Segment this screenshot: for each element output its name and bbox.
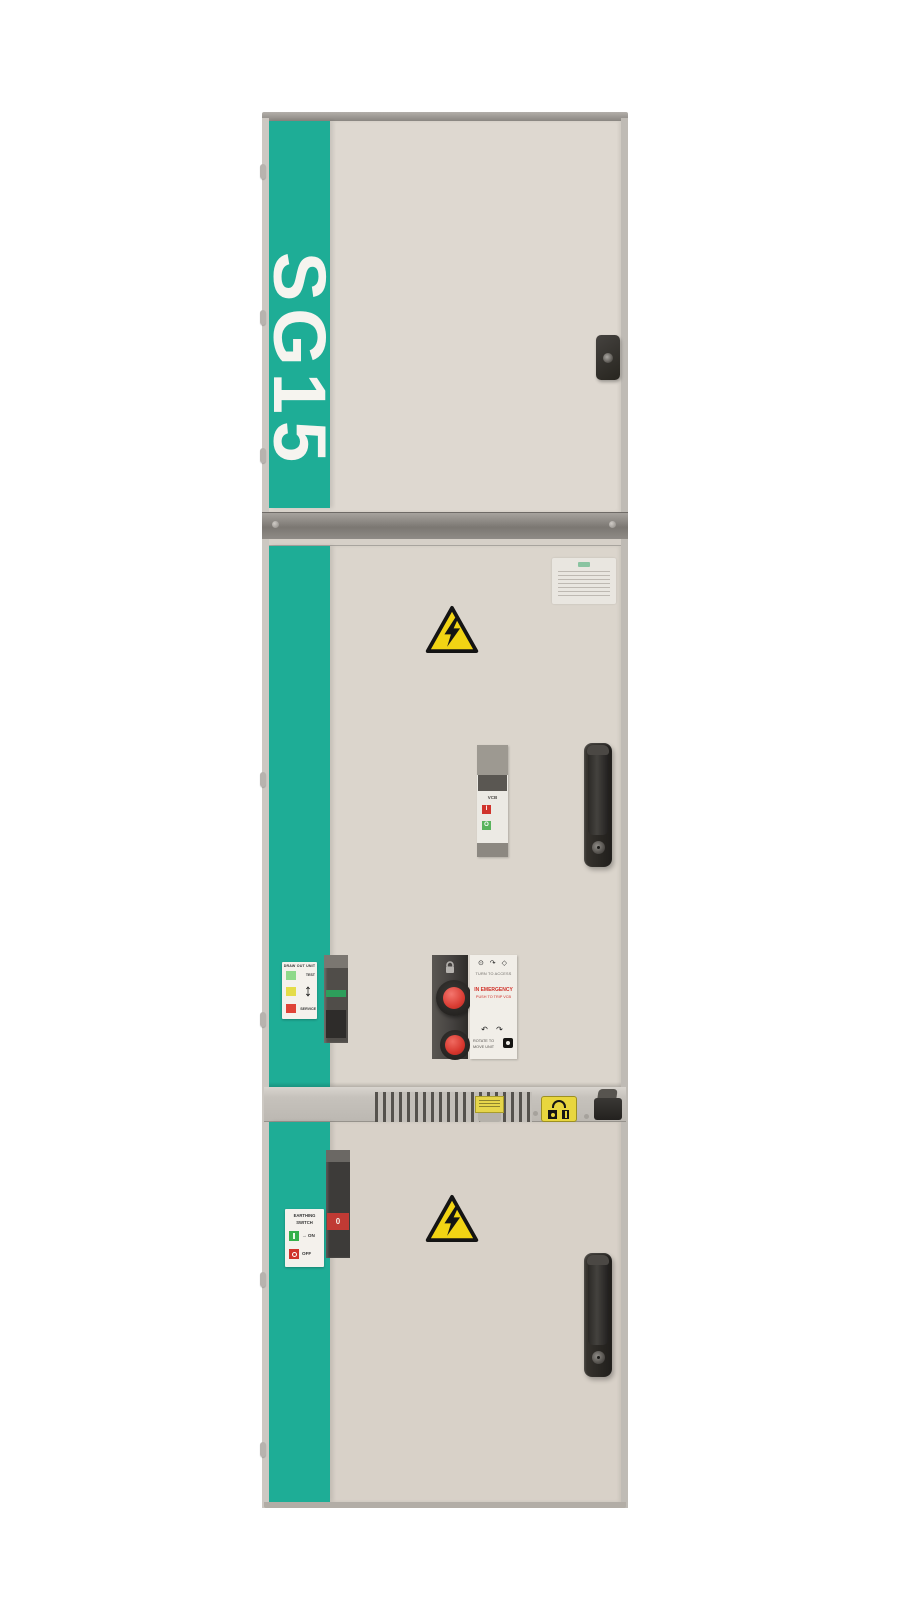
rating-plate (552, 558, 616, 604)
vcb-open-indicator: O (482, 821, 491, 830)
slot-top-segment (326, 1150, 350, 1162)
vcb-window-frame (478, 775, 507, 791)
top-door-lock[interactable] (596, 335, 620, 380)
earthing-on-icon (289, 1231, 299, 1241)
vcb-label: VCB (477, 795, 508, 800)
slot-lower-segment (326, 1010, 346, 1038)
rotate-text-line1: ROTATE TO (473, 1039, 494, 1043)
screw-icon (584, 1114, 589, 1119)
rail-warning-label (475, 1096, 504, 1113)
service-position-red-swatch (286, 1004, 296, 1013)
emergency-trip-button[interactable] (443, 987, 465, 1009)
rotate-to-lock-label (541, 1096, 577, 1122)
hinge (260, 1012, 266, 1027)
earthing-on-text: → ON (302, 1233, 315, 1238)
off-ring (292, 1252, 297, 1257)
rail-latch-tab[interactable] (478, 1113, 501, 1122)
ventilation-grille (375, 1092, 532, 1122)
racking-socket-icon (503, 1038, 513, 1048)
unlock-position-icon (562, 1110, 569, 1119)
slot-position-marker (326, 990, 346, 997)
high-voltage-hazard-icon (425, 1190, 479, 1247)
earthing-title-line2: SWITCH (285, 1220, 324, 1225)
lock-position-icon (548, 1110, 557, 1119)
screw-icon (533, 1111, 538, 1116)
socket-dot (506, 1041, 510, 1045)
rotate-text-line2: MOVE UNIT (473, 1045, 494, 1049)
middle-door-handle[interactable] (584, 743, 612, 867)
hinge (260, 1442, 266, 1457)
rotate-arc-icon (552, 1100, 566, 1108)
emergency-text-line1: IN EMERGENCY (470, 987, 517, 993)
bottom-door-handle[interactable] (584, 1253, 612, 1377)
hinge (260, 772, 266, 787)
test-position-green-swatch (286, 971, 296, 980)
draw-out-title: DRAW OUT UNIT (282, 964, 317, 968)
earthing-switch-slot[interactable]: 0 (326, 1150, 350, 1258)
up-down-arrow-icon: ↕ (299, 978, 317, 1004)
vcb-window-glass (477, 745, 508, 775)
padlock-icon (443, 960, 457, 975)
vcb-status-window: VCB I O (477, 745, 508, 857)
racking-access-button[interactable] (445, 1035, 465, 1055)
earthing-off-text: OFF (302, 1251, 311, 1256)
vcb-window-sill (477, 843, 508, 857)
lock-dot (551, 1113, 555, 1117)
label-text-lines (479, 1100, 500, 1109)
handle-body (594, 1098, 622, 1120)
draw-out-position-slot (324, 955, 348, 1043)
turn-to-access-text: TURN TO ACCESS (470, 972, 517, 976)
draw-out-unit-label: DRAW OUT UNIT TEST ↕ SERVICE (282, 962, 317, 1019)
cabinet-right-frame (621, 118, 628, 1508)
earthing-title-line1: EARTHING (285, 1213, 324, 1218)
unlock-slot (565, 1111, 567, 1118)
keyhole-icon (597, 1356, 600, 1359)
on-bar (293, 1233, 295, 1239)
rating-plate-text-lines (558, 571, 610, 597)
earthing-off-icon (289, 1249, 299, 1259)
keyhole-icon (597, 846, 600, 849)
access-instruction-label: ⊙ ↷ ◇ TURN TO ACCESS IN EMERGENCY PUSH T… (470, 955, 517, 1059)
brand-logo: SG15 (269, 121, 330, 508)
switchgear-cabinet: SG15 VCB I O DRAW OUT UNIT TEST ↕ SERVIC… (262, 112, 628, 1508)
key-position-icons: ⊙ ↷ ◇ (470, 959, 517, 967)
cabinet-base (264, 1502, 626, 1508)
on-label: ON (308, 1233, 315, 1238)
vcb-closed-indicator: I (482, 805, 491, 814)
racking-shutter-handle[interactable] (593, 1089, 623, 1121)
rating-plate-logo (578, 562, 590, 567)
brand-logo-text: SG15 (257, 252, 342, 469)
horizontal-divider (262, 512, 628, 539)
hinge (260, 1272, 266, 1287)
mid-position-yellow-swatch (286, 987, 296, 996)
cabinet-top-cap (262, 112, 628, 121)
rotate-arrows-icon: ↶ ↷ (470, 1025, 517, 1034)
handle-lock-cylinder[interactable] (592, 1351, 605, 1364)
earthing-switch-label: EARTHING SWITCH → ON OFF (285, 1209, 324, 1267)
handle-lock-cylinder[interactable] (592, 841, 605, 854)
screw-icon (609, 521, 616, 528)
on-arrow-icon: → (302, 1233, 307, 1238)
service-position-label: SERVICE (300, 1007, 316, 1011)
divider-gap (269, 539, 621, 546)
earthing-position-indicator: 0 (327, 1213, 349, 1230)
hinge (260, 164, 266, 179)
slot-top-segment (324, 955, 348, 968)
emergency-text-line2: PUSH TO TRIP VCB (470, 995, 517, 999)
brand-stripe-bottom (269, 1122, 330, 1502)
high-voltage-hazard-icon (425, 601, 479, 658)
screw-icon (272, 521, 279, 528)
test-position-label: TEST (306, 973, 315, 977)
keyhole-icon (603, 353, 613, 363)
